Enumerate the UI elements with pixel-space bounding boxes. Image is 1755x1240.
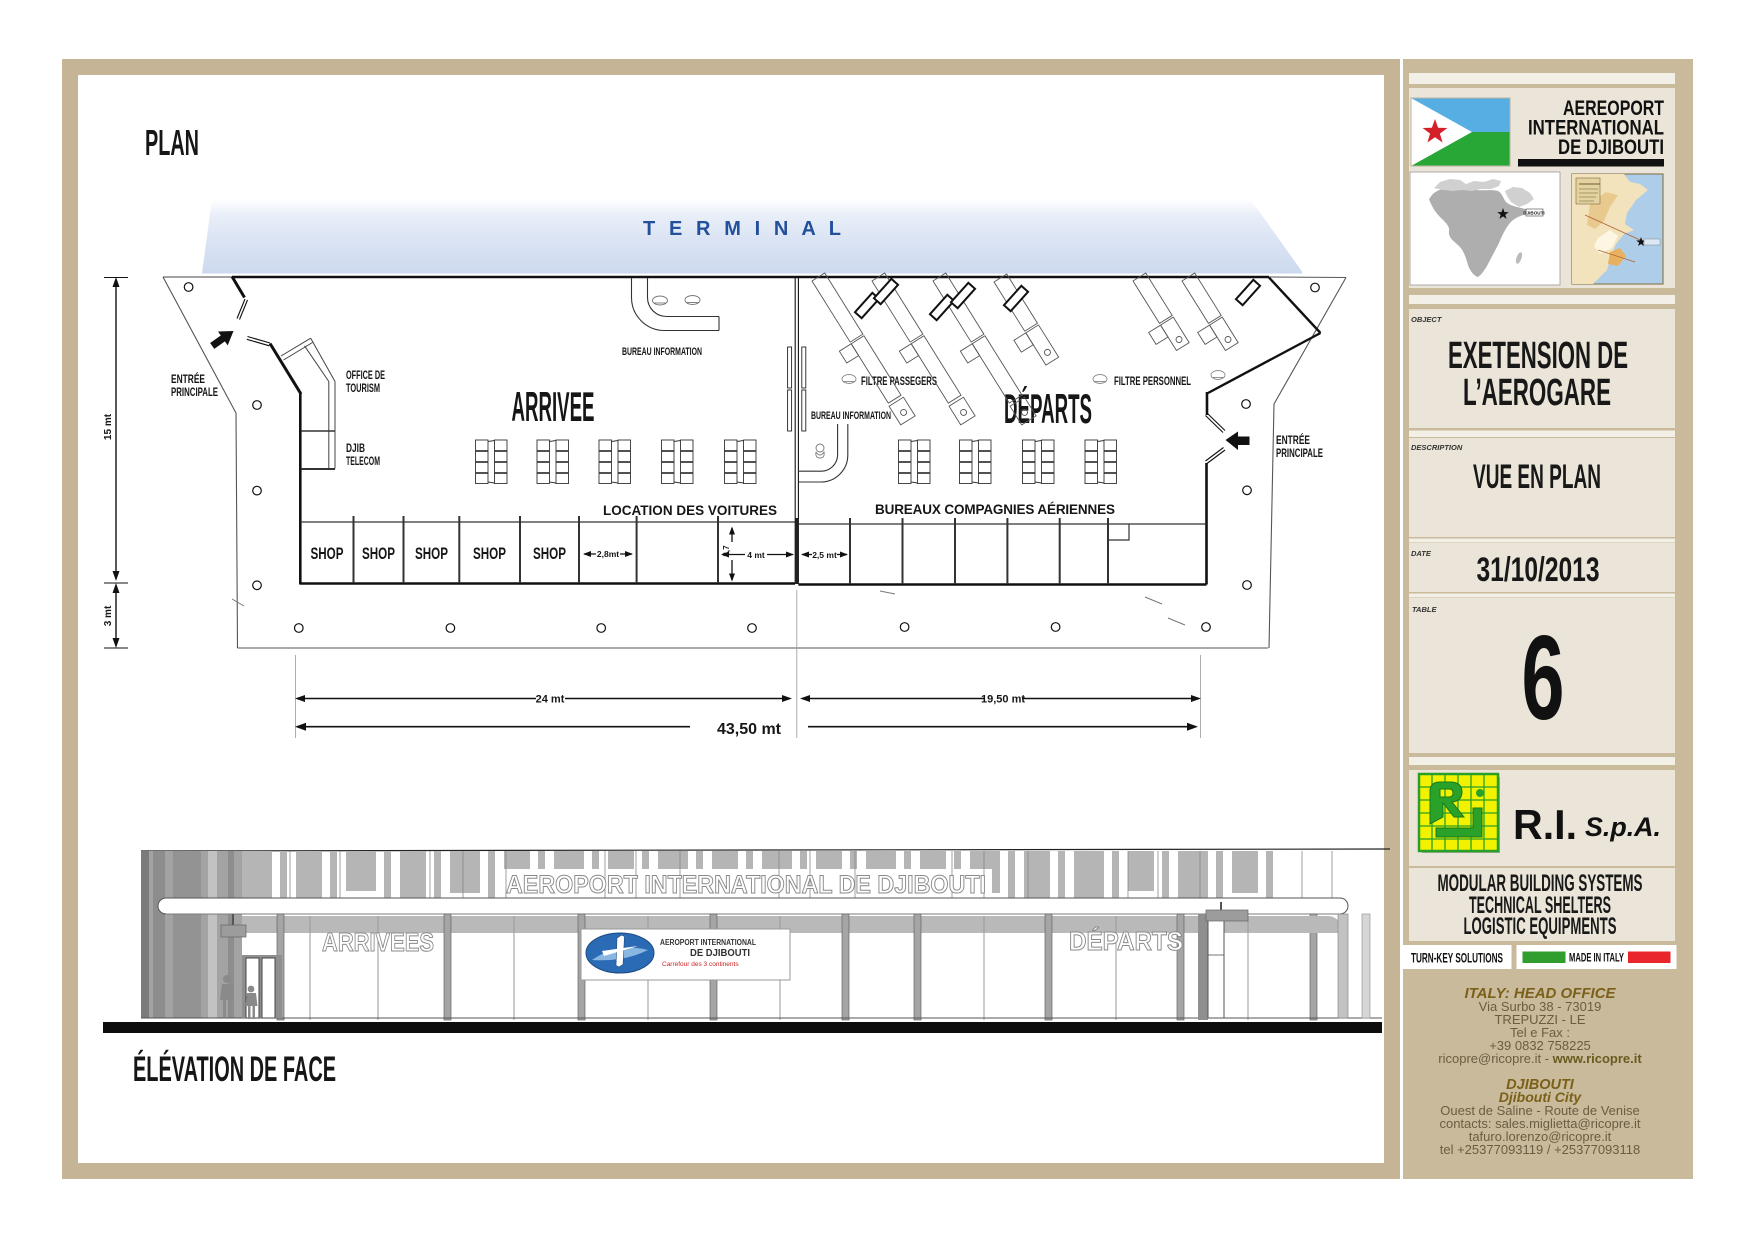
svg-text:ricopre@ricopre.it - www.ricop: ricopre@ricopre.it - www.ricopre.it <box>1438 1051 1642 1066</box>
svg-text:SHOP: SHOP <box>473 544 506 563</box>
svg-text:FILTRE PERSONNEL: FILTRE PERSONNEL <box>1114 376 1191 388</box>
svg-text:ENTRÉE: ENTRÉE <box>1276 434 1310 447</box>
svg-text:AEROPORT INTERNATIONAL DE DJIB: AEROPORT INTERNATIONAL DE DJIBOUTI <box>506 871 986 899</box>
svg-text:DESCRIPTION: DESCRIPTION <box>1411 443 1463 452</box>
svg-text:PLAN: PLAN <box>145 122 199 163</box>
svg-text:AEROPORT INTERNATIONAL: AEROPORT INTERNATIONAL <box>660 938 756 947</box>
svg-text:DJIB: DJIB <box>346 443 365 455</box>
svg-text:MADE IN ITALY: MADE IN ITALY <box>1569 953 1624 965</box>
svg-text:Carrefour des 3 continents: Carrefour des 3 continents <box>662 961 739 968</box>
svg-text:SHOP: SHOP <box>311 544 344 563</box>
svg-text:ÉLÉVATION DE FACE: ÉLÉVATION DE FACE <box>133 1049 336 1089</box>
svg-text:ARRIVEE: ARRIVEE <box>512 383 595 430</box>
svg-text:DÉPARTS: DÉPARTS <box>1004 385 1092 432</box>
svg-text:PRINCIPALE: PRINCIPALE <box>1276 448 1323 460</box>
svg-text:BUREAUX COMPAGNIES AÉRIENNES: BUREAUX COMPAGNIES AÉRIENNES <box>875 502 1115 517</box>
svg-text:SHOP: SHOP <box>533 544 566 563</box>
svg-text:ARRIVEES: ARRIVEES <box>322 927 434 957</box>
svg-text:OFFICE DE: OFFICE DE <box>346 370 385 382</box>
svg-text:S.p.A.: S.p.A. <box>1585 812 1661 842</box>
svg-text:DÉPARTS: DÉPARTS <box>1069 926 1183 956</box>
svg-text:tel +25377093119 / +2537709311: tel +25377093119 / +25377093118 <box>1440 1142 1641 1157</box>
svg-text:VUE EN PLAN: VUE EN PLAN <box>1473 458 1601 496</box>
svg-text:OBJECT: OBJECT <box>1411 315 1443 324</box>
svg-text:EXETENSION DE: EXETENSION DE <box>1448 335 1628 377</box>
svg-text:4 mt: 4 mt <box>747 550 765 560</box>
svg-text:DE DJIBOUTI: DE DJIBOUTI <box>690 948 750 959</box>
svg-text:SHOP: SHOP <box>362 544 395 563</box>
svg-text:DATE: DATE <box>1411 549 1432 558</box>
svg-text:24 mt: 24 mt <box>536 694 565 706</box>
svg-text:TELECOM: TELECOM <box>346 456 380 468</box>
svg-text:PRINCIPALE: PRINCIPALE <box>171 387 218 399</box>
svg-text:6: 6 <box>1522 611 1565 745</box>
svg-text:BUREAU INFORMATION: BUREAU INFORMATION <box>811 410 891 422</box>
svg-text:2,8mt: 2,8mt <box>597 549 619 559</box>
svg-text:43,50 mt: 43,50 mt <box>717 721 782 738</box>
svg-text:DE DJIBOUTI: DE DJIBOUTI <box>1558 136 1664 159</box>
svg-text:L’AEROGARE: L’AEROGARE <box>1463 372 1611 414</box>
svg-text:LOCATION DES VOITURES: LOCATION DES VOITURES <box>603 503 777 518</box>
svg-text:ENTRÉE: ENTRÉE <box>171 373 205 386</box>
svg-text:DJIBOUTI: DJIBOUTI <box>1523 210 1544 215</box>
svg-text:SHOP: SHOP <box>415 544 448 563</box>
svg-text:15 mt: 15 mt <box>103 413 114 440</box>
svg-text:31/10/2013: 31/10/2013 <box>1477 551 1600 589</box>
svg-text:LOGISTIC EQUIPMENTS: LOGISTIC EQUIPMENTS <box>1464 913 1617 940</box>
svg-text:R.I.: R.I. <box>1513 801 1577 848</box>
svg-text:BUREAU INFORMATION: BUREAU INFORMATION <box>622 346 702 358</box>
svg-text:TOURISM: TOURISM <box>346 383 380 395</box>
svg-text:2,5 mt: 2,5 mt <box>812 550 837 560</box>
svg-text:19,50 mt: 19,50 mt <box>981 694 1025 706</box>
svg-text:TABLE: TABLE <box>1412 605 1437 614</box>
svg-text:3 mt: 3 mt <box>103 605 114 626</box>
svg-text:TURN-KEY SOLUTIONS: TURN-KEY SOLUTIONS <box>1411 951 1503 966</box>
